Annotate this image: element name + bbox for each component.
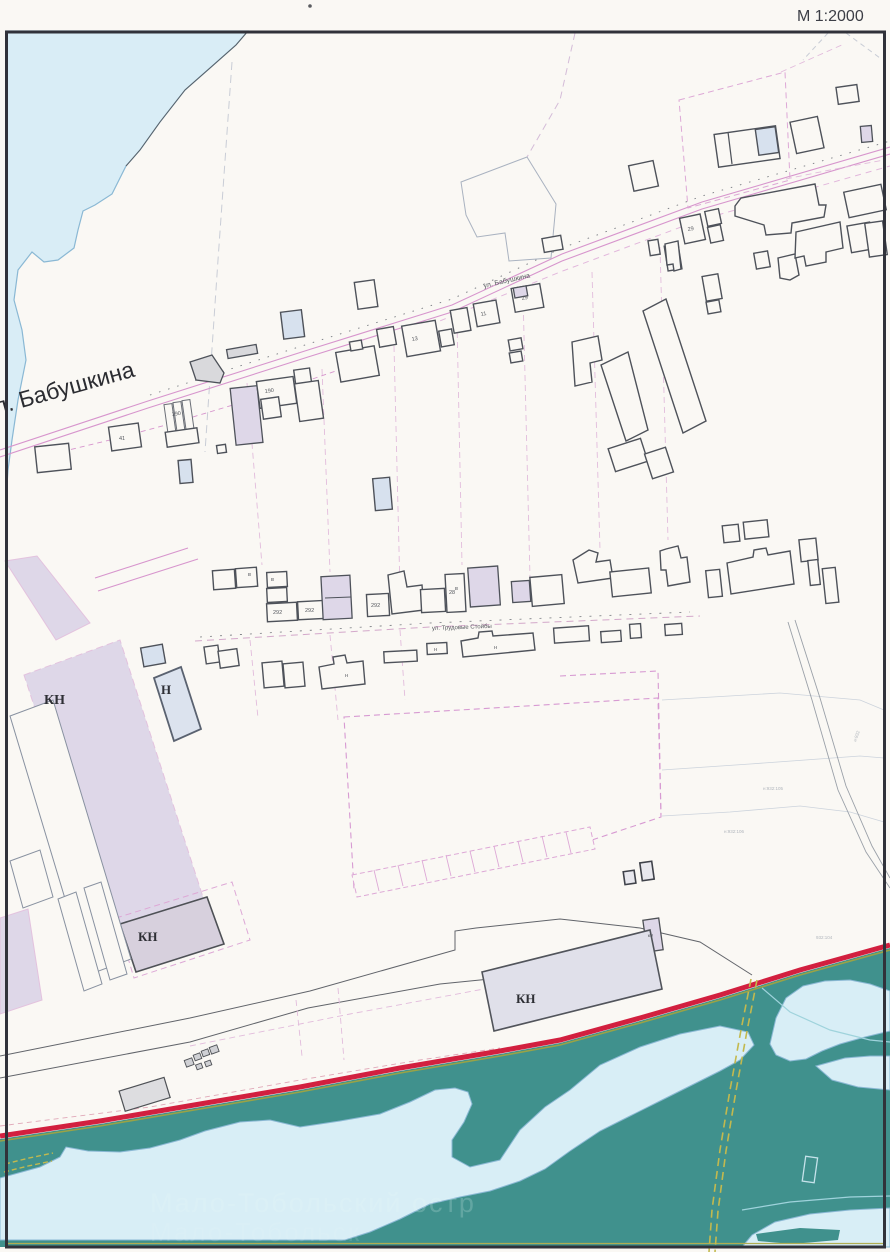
svg-text:н: н [494, 645, 497, 651]
svg-text:29: 29 [521, 295, 528, 302]
svg-text:КН: КН [44, 693, 65, 708]
svg-text:190: 190 [171, 411, 181, 418]
svg-text:932:104: 932:104 [816, 935, 833, 940]
svg-text:Мало-Тобольский остр: Мало-Тобольский остр [150, 1188, 476, 1218]
svg-text:н: н [434, 647, 437, 653]
svg-text:в: в [271, 577, 274, 583]
svg-text:Н: Н [161, 682, 171, 697]
svg-text:ул. Трудовые Стойбы: ул. Трудовые Стойбы [432, 623, 492, 632]
svg-text:в: в [455, 586, 458, 592]
svg-text:в: в [248, 572, 251, 578]
svg-text:КН: КН [516, 991, 536, 1006]
svg-text:н: н [345, 673, 348, 679]
svg-text:н:932:105: н:932:105 [763, 786, 783, 791]
svg-text:292: 292 [305, 608, 314, 614]
svg-text:190: 190 [264, 388, 274, 395]
svg-text:29: 29 [687, 226, 694, 233]
svg-text:292: 292 [371, 603, 380, 609]
svg-text:М 1:2000: М 1:2000 [797, 8, 864, 25]
svg-text:41: 41 [119, 436, 125, 442]
svg-text:292: 292 [273, 610, 282, 616]
svg-text:н:932:106: н:932:106 [724, 829, 744, 834]
svg-text:13: 13 [411, 336, 418, 343]
svg-text:кн: кн [648, 933, 654, 939]
svg-text:Мало-Тобольск: Мало-Тобольск [150, 1217, 361, 1247]
svg-text:н:932: н:932 [852, 730, 861, 743]
svg-text:КН: КН [138, 929, 158, 944]
svg-text:11: 11 [480, 311, 487, 318]
